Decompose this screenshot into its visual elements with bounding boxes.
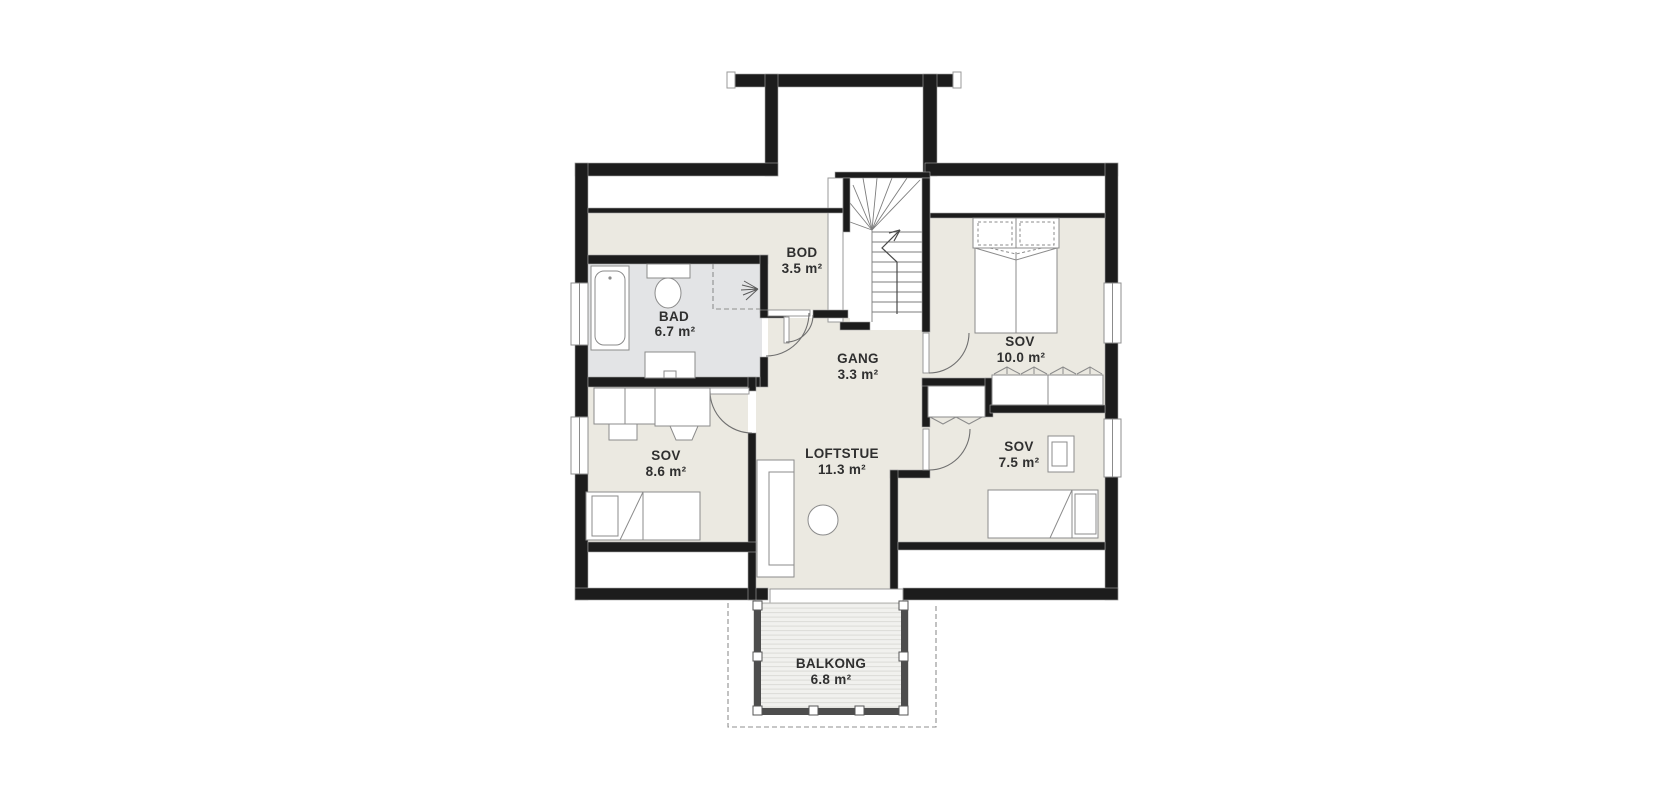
top-left-wall [575,163,778,176]
stair-foot-wall [840,322,870,330]
coffee-table [808,505,838,535]
room-area-bad: 6.7 m² [655,324,696,339]
stair-well [850,178,922,330]
knee-wall-right [930,213,1105,218]
stair-top-wall [835,172,930,178]
right-wall [1105,163,1118,600]
double-bed [973,218,1059,333]
bod-bottom-wall-right [813,310,848,318]
bottom-wall-right [903,588,1118,600]
room-label-balkong: BALKONG [796,656,866,671]
desk [655,388,710,426]
room-area-bod: 3.5 m² [782,261,823,276]
room-label-sov-7-5: SOV [1004,439,1033,454]
sink-icon [645,352,695,378]
single-bed [988,490,1098,538]
room-label-sov-8-6: SOV [651,448,680,463]
bad-east-wall-lower [760,357,768,387]
stair-right-wall [922,178,930,332]
loftstue-west-wall-lower [748,433,756,600]
room-label-sov-10: SOV [1005,334,1034,349]
stair-railing [828,178,843,322]
closet-top-wall [922,378,993,386]
bad-east-wall-upper [760,255,768,313]
room-area-gang: 3.3 m² [838,367,879,382]
knee-wall-left [588,208,843,213]
room-area-loftstue: 11.3 m² [818,462,866,477]
wall-end-cap [953,72,961,88]
chair [1052,442,1067,466]
floor-plan-drawing: BOD 3.5 m² BAD 6.7 m² GANG 3.3 m² SOV 10… [0,0,1670,800]
room-label-bod: BOD [787,245,818,260]
bad-top-wall [588,255,768,264]
bay-left-wall [765,74,778,176]
sofa [757,460,794,577]
floor-gap [897,550,930,590]
balcony-railing-bottom [754,708,908,715]
wall-end-cap [727,72,735,88]
loftstue-east-wall [890,470,898,600]
pillow [592,496,618,536]
room-area-sov-8-6: 8.6 m² [646,464,687,479]
room-area-sov-10: 10.0 m² [997,350,1046,365]
room-label-gang: GANG [837,351,879,366]
bay-right-wall [923,74,937,176]
bottom-wall-left [575,588,768,600]
pillow [1075,494,1096,534]
single-bed [586,492,700,540]
sov-8-6-bottom-wall [588,542,756,552]
top-right-wall [925,163,1118,176]
sov-10-bottom-wall [990,405,1105,413]
room-area-balkong: 6.8 m² [811,672,852,687]
sov-7-5-bottom-wall [898,542,1105,550]
staircase [828,178,922,330]
room-label-loftstue: LOFTSTUE [805,446,879,461]
floor-plan-page: BOD 3.5 m² BAD 6.7 m² GANG 3.3 m² SOV 10… [0,0,1670,800]
room-label-bad: BAD [659,309,689,324]
stool [609,424,637,440]
room-area-sov-7-5: 7.5 m² [999,455,1040,470]
stair-left-wall [843,178,850,232]
bathtub-icon [591,266,629,350]
